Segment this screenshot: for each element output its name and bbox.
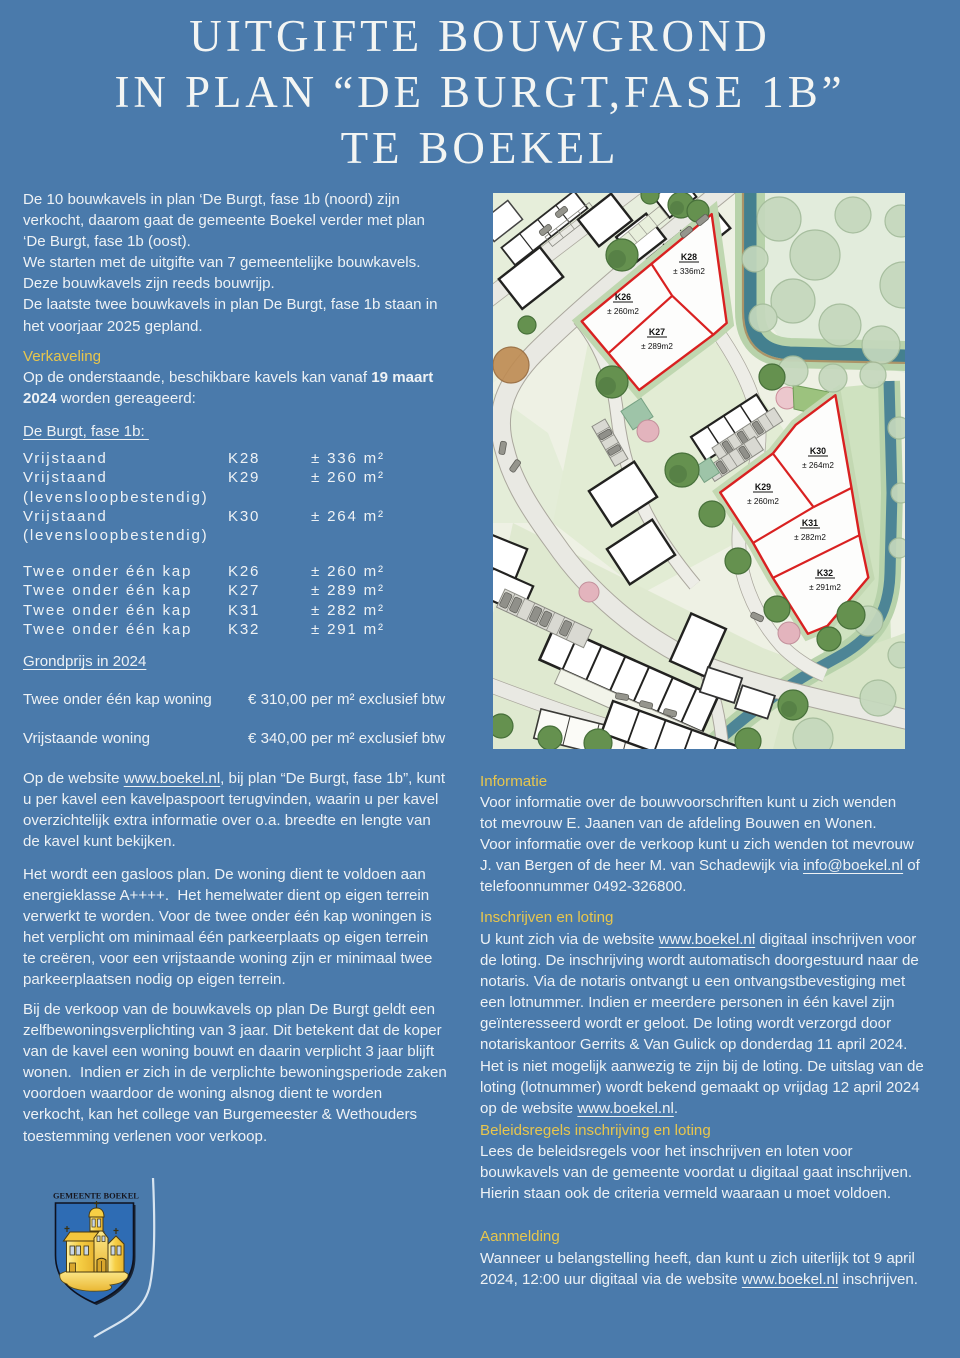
svg-text:± 260m2: ± 260m2 bbox=[747, 497, 779, 506]
svg-text:K26: K26 bbox=[615, 292, 631, 302]
svg-text:K32: K32 bbox=[817, 568, 833, 578]
svg-text:± 336m2: ± 336m2 bbox=[673, 267, 705, 276]
svg-text:K31: K31 bbox=[802, 518, 818, 528]
svg-text:K27: K27 bbox=[649, 327, 665, 337]
svg-text:K28: K28 bbox=[681, 252, 697, 262]
svg-text:GEMEENTE BOEKEL: GEMEENTE BOEKEL bbox=[53, 1192, 139, 1201]
svg-text:± 291m2: ± 291m2 bbox=[809, 583, 841, 592]
svg-text:± 282m2: ± 282m2 bbox=[794, 533, 826, 542]
svg-text:± 260m2: ± 260m2 bbox=[607, 307, 639, 316]
svg-text:± 289m2: ± 289m2 bbox=[641, 342, 673, 351]
svg-text:K29: K29 bbox=[755, 482, 771, 492]
svg-text:± 264m2: ± 264m2 bbox=[802, 461, 834, 470]
svg-text:K30: K30 bbox=[810, 446, 826, 456]
